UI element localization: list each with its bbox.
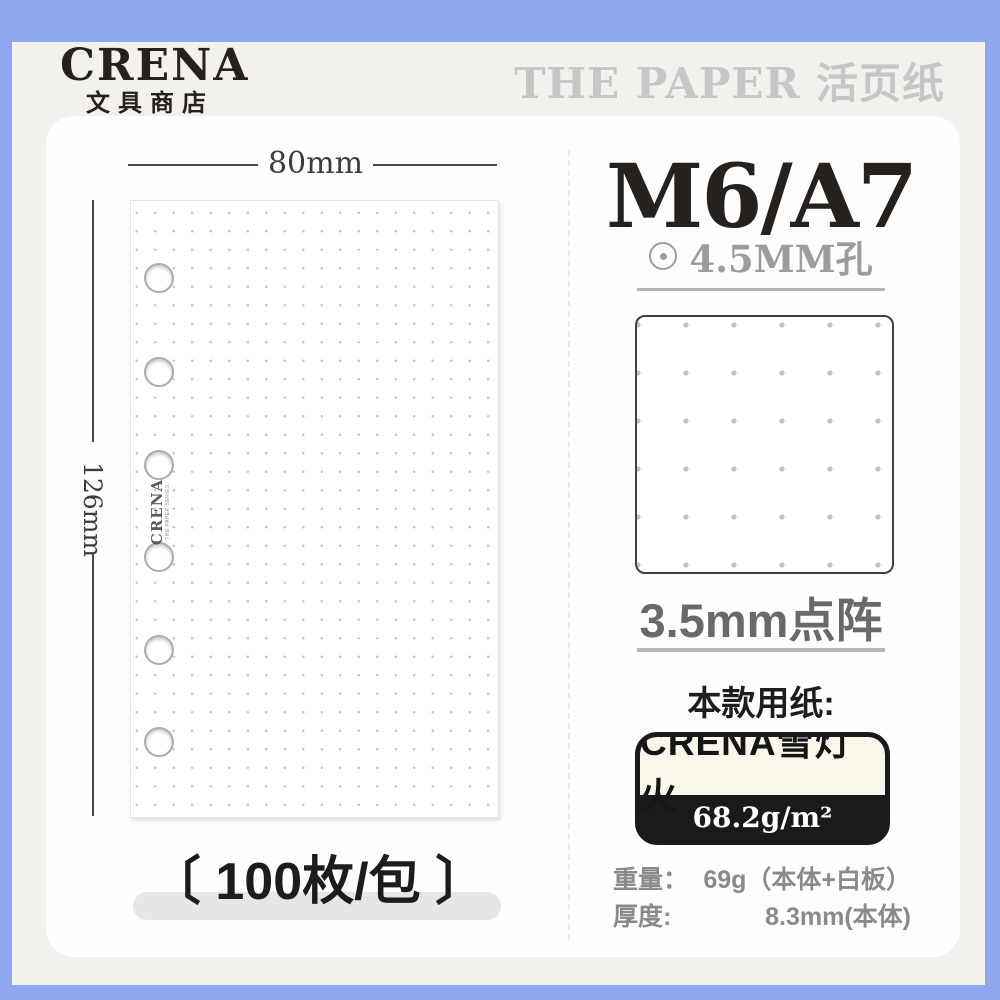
divider [637, 288, 885, 291]
height-dimension-line-bottom [92, 552, 94, 816]
grid-spacing-label: 3.5mm点阵 [561, 582, 961, 651]
dot-grid-sample [635, 315, 894, 574]
brand-logo: CRENA 文具商店 [60, 42, 249, 118]
binder-hole [144, 635, 174, 665]
hole-spec-label: 4.5MM孔 [689, 229, 872, 283]
spec-table: 重量： 69g（本体+白板） 厚度: 8.3mm(本体) [613, 862, 911, 936]
content-card: 80mm 126mm CRENA THE PAPER SERIES 〔 100枚… [46, 116, 960, 957]
spec-row-label: 重量： [613, 862, 688, 899]
spec-row-value: 8.3mm(本体) [765, 899, 911, 936]
width-dimension-line-left [128, 164, 258, 166]
page-watermark-subtitle: THE PAPER SERIES [165, 475, 171, 549]
paper-name-label: CRENA雪灯火 [640, 737, 885, 795]
brand-logo-subtitle: 文具商店 [86, 90, 249, 118]
product-poster: CRENA 文具商店 THE PAPER 活页纸 80mm 126mm CREN… [0, 0, 1000, 1000]
binder-hole [144, 357, 174, 387]
poster-background: CRENA 文具商店 THE PAPER 活页纸 80mm 126mm CREN… [12, 42, 985, 985]
divider [637, 648, 885, 652]
paper-type-heading: 本款用纸: [561, 676, 961, 725]
height-dimension-line-top [92, 200, 94, 442]
page-watermark-title: CRENA [149, 475, 165, 549]
page-watermark: CRENA THE PAPER SERIES [149, 475, 179, 549]
paper-spec-badge: CRENA雪灯火 68.2g/m² [635, 732, 890, 845]
dot-grid-page-preview: CRENA THE PAPER SERIES [130, 200, 499, 818]
spec-row-thickness: 厚度: 8.3mm(本体) [613, 899, 911, 936]
brand-logo-title: CRENA [60, 42, 249, 90]
binder-hole [144, 727, 174, 757]
spec-row-label: 厚度: [613, 899, 671, 936]
spec-row-weight: 重量： 69g（本体+白板） [613, 862, 911, 899]
hole-spec-row: 4.5MM孔 [561, 234, 961, 278]
series-title: THE PAPER 活页纸 [514, 50, 945, 111]
width-dimension-label: 80mm [258, 146, 373, 181]
spec-row-value: 69g（本体+白板） [703, 862, 911, 899]
binder-hole [144, 263, 174, 293]
width-dimension-line-right [373, 164, 497, 166]
hole-diameter-icon [649, 242, 677, 270]
height-dimension-label: 126mm [80, 462, 105, 535]
sheet-count-label: 〔 100枚/包 〕 [118, 852, 518, 912]
